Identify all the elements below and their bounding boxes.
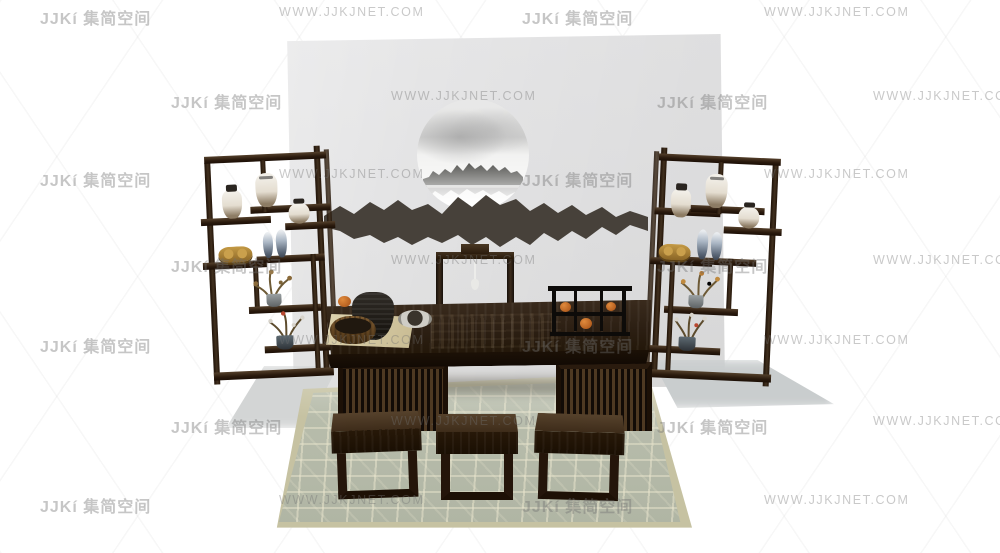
persimmon-fruit (560, 302, 571, 312)
white-lidded-vase (222, 189, 243, 219)
shelf-post (204, 163, 220, 385)
plant-pot (276, 335, 294, 350)
stool-left (330, 410, 423, 503)
plant-pot (688, 295, 704, 309)
blue-white-gourd-vase (696, 229, 708, 259)
tea-plate (398, 310, 432, 328)
shelf-bottom-rail (651, 369, 771, 382)
persimmon-fruit (606, 302, 616, 311)
round-jar (288, 202, 310, 224)
plant-pot (678, 336, 696, 351)
shelf-divider (726, 259, 733, 311)
stool-center (436, 414, 518, 504)
gold-knot-ornament (218, 246, 253, 264)
white-handled-vase (255, 173, 279, 208)
wicker-basket (330, 316, 376, 344)
display-shelf-left (198, 145, 343, 387)
shelf-post (763, 165, 779, 387)
persimmon-fruit (580, 318, 592, 329)
blue-white-vase (275, 229, 287, 257)
stool-right (533, 413, 625, 505)
shelf-bottom-rail (214, 367, 334, 380)
blue-white-vase (262, 232, 273, 258)
furniture-render-scene: JJKí 集简空间WWW.JJKJNET.COMJJKí 集简空间WWW.JJK… (0, 0, 1000, 553)
white-handled-vase (705, 174, 729, 209)
plant-pot (266, 294, 282, 308)
desk-carved-band (431, 313, 561, 349)
gold-knot-ornament (658, 243, 691, 260)
round-jar (738, 206, 760, 229)
display-shelf-right (643, 147, 787, 387)
mountain-relief-art (320, 186, 652, 250)
mini-display-stand (548, 282, 632, 336)
blue-white-gourd-vase (710, 232, 722, 260)
persimmon-fruit (338, 296, 351, 307)
